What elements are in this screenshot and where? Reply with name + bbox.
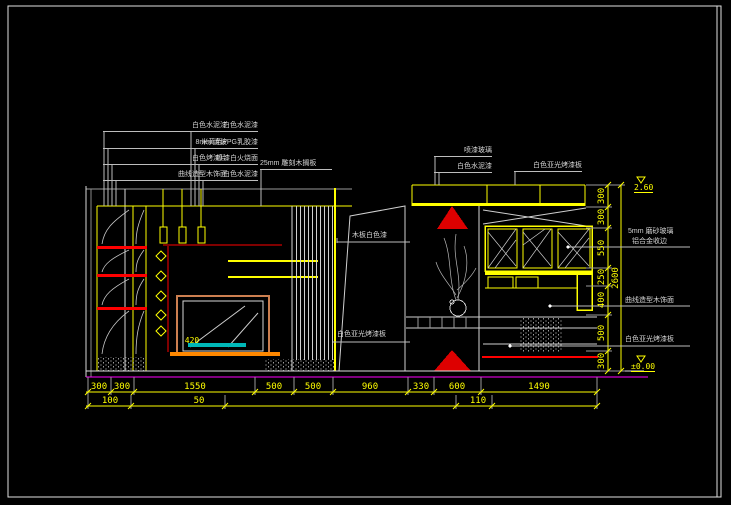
red-cone-lamp — [437, 206, 468, 229]
dimension-text: 300 — [597, 346, 607, 376]
dimension-text: 330 — [404, 382, 438, 392]
red-shelf — [97, 246, 147, 249]
dimension-text: 600 — [440, 382, 474, 392]
dimension-text: 500 — [257, 382, 291, 392]
overall-dimension-text: 2600 — [611, 263, 621, 293]
dimension-text: 110 — [461, 396, 495, 406]
dimension-text: 550 — [597, 233, 607, 263]
material-note: 25mm 雕刻木搁板 — [260, 159, 332, 170]
red-cone-vase — [434, 350, 471, 371]
dimension-text: 500 — [296, 382, 330, 392]
sheet-frame — [8, 6, 721, 497]
plant-branches — [436, 234, 476, 300]
dimension-text: 50 — [182, 396, 216, 406]
hatch-base-block — [265, 359, 334, 372]
material-note: 白色水泥漆 — [190, 121, 258, 132]
material-note: 5mm 磨砂玻璃 — [628, 227, 674, 236]
material-note: 白色亚光烤漆板 — [625, 335, 674, 344]
dimension-text: 1550 — [178, 382, 212, 392]
material-note: 米黄色PPG乳胶漆 — [190, 138, 258, 149]
dimension-text: 960 — [353, 382, 387, 392]
material-note: 铝合金收边 — [632, 237, 667, 246]
diamond-ornaments — [156, 251, 166, 336]
dimension-text: 300 — [597, 202, 607, 232]
inner-dimension-text: 420 — [180, 336, 204, 346]
ceiling-band — [412, 185, 586, 226]
glass-door-cabinet — [485, 226, 592, 310]
dimension-text: 1490 — [522, 382, 556, 392]
level-mark-top: 2.60 — [634, 183, 653, 193]
hatch-shelf-block — [520, 318, 562, 352]
vase — [450, 300, 466, 316]
material-note: 白色亚光烤漆板 — [337, 330, 386, 339]
fireplace — [170, 296, 280, 356]
floor-lines — [86, 371, 648, 377]
glass-reflection-lines — [488, 229, 589, 268]
red-shelf — [97, 307, 147, 310]
hatch-base-block — [97, 357, 146, 371]
lower-shelf-lines — [482, 318, 598, 357]
material-note: 木板白色漆 — [352, 231, 387, 240]
level-mark-bottom: ±0.00 — [631, 362, 655, 372]
pendant-lamps — [160, 189, 205, 243]
red-shelf — [97, 274, 147, 277]
material-note: 白色水泥漆 — [190, 170, 258, 181]
orange-hearth-bar — [170, 352, 280, 356]
material-note: 喷漆玻璃 — [434, 146, 492, 157]
material-note: 喷漆白火烧面 — [190, 154, 258, 165]
striped-wall-panel — [265, 188, 336, 372]
material-note: 曲线造型木饰面 — [625, 296, 674, 305]
curved-shelf-profiles — [102, 210, 144, 354]
dimension-text: 300 — [105, 382, 139, 392]
dimension-text: 500 — [597, 318, 607, 348]
material-note: 白色水泥漆 — [434, 162, 492, 173]
elevation-drawing — [0, 0, 731, 505]
material-note: 白色亚光烤漆板 — [514, 161, 582, 172]
cad-elevation-canvas: 白色水泥漆 8mm 清玻 白色烤漆片 曲线造型木饰面 白色水泥漆 米黄色PPG乳… — [0, 0, 731, 505]
dimension-text: 100 — [93, 396, 127, 406]
dimension-text: 400 — [597, 285, 607, 315]
